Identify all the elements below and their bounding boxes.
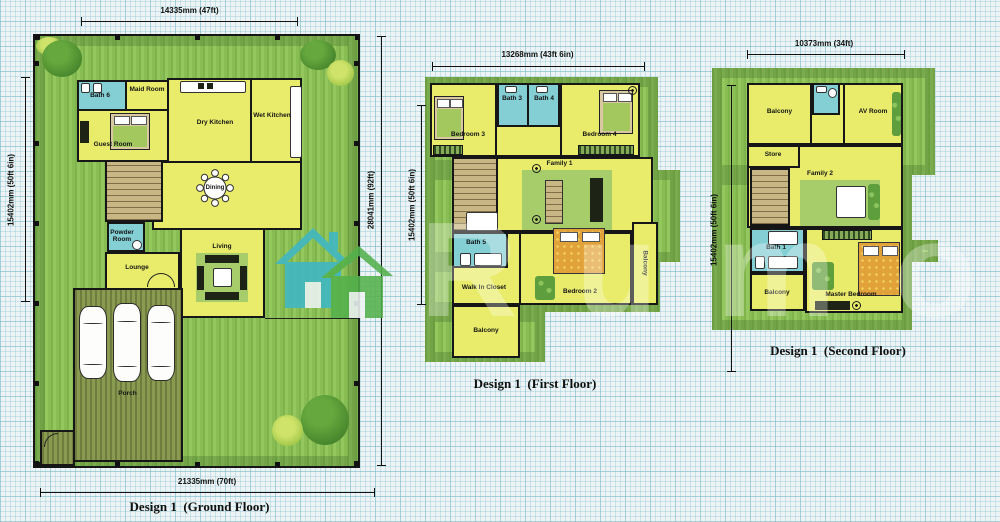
first-dim-left: 15402mm (50ft 6in) <box>408 169 417 241</box>
bedroom2-wall <box>519 232 521 305</box>
second-caption: Design 1 (Second Floor) <box>733 343 943 359</box>
room-label-bedroom2: Bedroom 2 <box>551 288 609 295</box>
room-label-av: AV Room <box>848 108 898 115</box>
room-label-balcony-bottom2: Balcony <box>752 289 802 296</box>
pillow-icon <box>863 246 879 256</box>
room-label-bath6: Bath 6 <box>79 92 121 99</box>
room-label-powder: Powder Room <box>104 229 140 244</box>
tree-icon <box>42 40 82 77</box>
room-label-dining: Dining <box>195 185 235 192</box>
double-sink-icon <box>768 256 798 269</box>
second-dim-top: 10373mm (34ft) <box>740 39 908 48</box>
coffee-table-icon <box>213 268 232 287</box>
first-dimline-top <box>432 66 645 67</box>
staircase <box>105 160 163 222</box>
wardrobe-icon <box>578 145 634 155</box>
room-maid <box>125 80 170 111</box>
fence-posts-top <box>35 35 358 40</box>
ground-dim-bottom: 21335mm (70ft) <box>92 477 322 486</box>
pillow-icon <box>560 232 578 242</box>
first-dimline-left <box>421 105 422 305</box>
car-icon <box>113 303 141 382</box>
blanket-icon <box>603 103 630 131</box>
fence-posts-bottom <box>35 462 358 467</box>
sink-icon <box>536 86 548 93</box>
room-label-bath3: Bath 3 <box>497 95 527 102</box>
bathtub-icon <box>768 231 798 245</box>
fence-posts-right <box>354 36 359 466</box>
room-label-lounge: Lounge <box>113 264 161 271</box>
toilet-icon <box>755 256 765 269</box>
pillow-icon <box>603 93 617 102</box>
room-label-maid: Maid Room <box>123 86 171 93</box>
wardrobe-icon <box>433 145 463 155</box>
kitchen-counter-icon <box>290 86 302 158</box>
staircase <box>750 168 790 226</box>
sofa-icon <box>240 266 247 290</box>
room-label-bath5: Bath 5 <box>456 239 496 246</box>
pillow-icon <box>582 232 600 242</box>
toilet-icon <box>828 88 837 98</box>
blueprint-canvas: 14335mm (47ft) 15402mm (50ft 6in) 28041m… <box>0 0 1000 522</box>
room-label-porch: Porch <box>100 390 155 397</box>
bed-icon <box>553 228 605 274</box>
second-garden-strip <box>912 240 938 262</box>
ground-dimline-right <box>381 36 382 466</box>
ceiling-fan-icon <box>852 301 861 310</box>
sink-icon <box>816 86 827 93</box>
garden-edge-line <box>265 318 358 319</box>
room-label-dry-kitchen: Dry Kitchen <box>185 119 245 126</box>
car-icon <box>79 306 107 379</box>
sofa-icon <box>205 255 239 263</box>
first-caption: Design 1 (First Floor) <box>430 376 640 392</box>
sofa-icon <box>868 184 880 220</box>
sofa-icon <box>197 266 204 290</box>
ceiling-fan-icon <box>628 86 637 95</box>
double-sink-icon <box>474 253 502 266</box>
second-dimline-top <box>747 54 905 55</box>
sofa-icon <box>205 292 239 300</box>
room-label-bedroom3: Bedroom 3 <box>442 131 494 138</box>
pillow-icon <box>131 116 147 125</box>
pillow-icon <box>114 116 130 125</box>
closet-icon <box>466 212 498 231</box>
ground-dimline-bottom <box>40 492 375 493</box>
room-label-master: Master Bedroom <box>815 291 887 298</box>
ceiling-fan-icon <box>532 215 541 224</box>
car-icon <box>147 305 175 381</box>
sink-icon <box>505 86 517 93</box>
second-dimline-left <box>731 85 732 372</box>
pillow-icon <box>450 99 463 108</box>
first-dim-top: 13268mm (43ft 6in) <box>430 50 645 59</box>
stove-icon <box>207 83 213 89</box>
room-label-bath1: Bath 1 <box>756 244 796 251</box>
room-label-bath4: Bath 4 <box>529 95 559 102</box>
room-label-wet-kitchen: Wet Kitchen <box>253 112 291 119</box>
second-dim-left: 15402mm (50ft 6in) <box>710 194 719 266</box>
shrub-icon <box>327 60 354 86</box>
bath-divider-wall <box>527 83 529 127</box>
ground-caption: Design 1 (Ground Floor) <box>92 499 307 515</box>
dresser-icon <box>815 301 850 310</box>
bed-icon <box>858 242 900 296</box>
ground-dim-left: 15402mm (50ft 6in) <box>7 154 16 226</box>
room-label-family2: Family 2 <box>794 170 846 177</box>
sofa-icon <box>590 178 603 222</box>
flower-shrub-icon <box>272 415 303 446</box>
room-label-living: Living <box>200 243 244 250</box>
ground-dim-right: 28041mm (92ft) <box>367 171 376 229</box>
room-label-walk-in-closet: Walk In Closet <box>450 284 518 291</box>
room-dining-hall <box>152 161 302 230</box>
fence-posts-left <box>34 36 39 466</box>
wardrobe-icon <box>822 230 872 240</box>
table-icon <box>545 180 563 224</box>
ground-dim-top: 14335mm (47ft) <box>81 6 298 15</box>
tree-icon <box>301 395 349 445</box>
pillow-icon <box>437 99 450 108</box>
table-icon <box>836 186 866 218</box>
stove-icon <box>198 83 204 89</box>
pillow-icon <box>882 246 898 256</box>
kitchen-counter-icon <box>180 81 246 93</box>
room-label-balcony-right: Balcony <box>642 250 649 275</box>
toilet-icon <box>460 253 471 266</box>
room-label-family1: Family 1 <box>532 160 587 167</box>
bed-icon <box>599 90 633 134</box>
room-label-balcony-bottom: Balcony <box>460 327 512 334</box>
room-label-guest: Guest Room <box>83 141 143 148</box>
room-label-store: Store <box>750 151 796 158</box>
ground-dimline-top <box>81 21 298 22</box>
room-label-bedroom4: Bedroom 4 <box>572 131 627 138</box>
plant-icon <box>812 262 834 290</box>
desk-icon <box>80 121 89 143</box>
ground-dimline-left <box>25 77 26 302</box>
room-label-balcony-top: Balcony <box>752 108 807 115</box>
